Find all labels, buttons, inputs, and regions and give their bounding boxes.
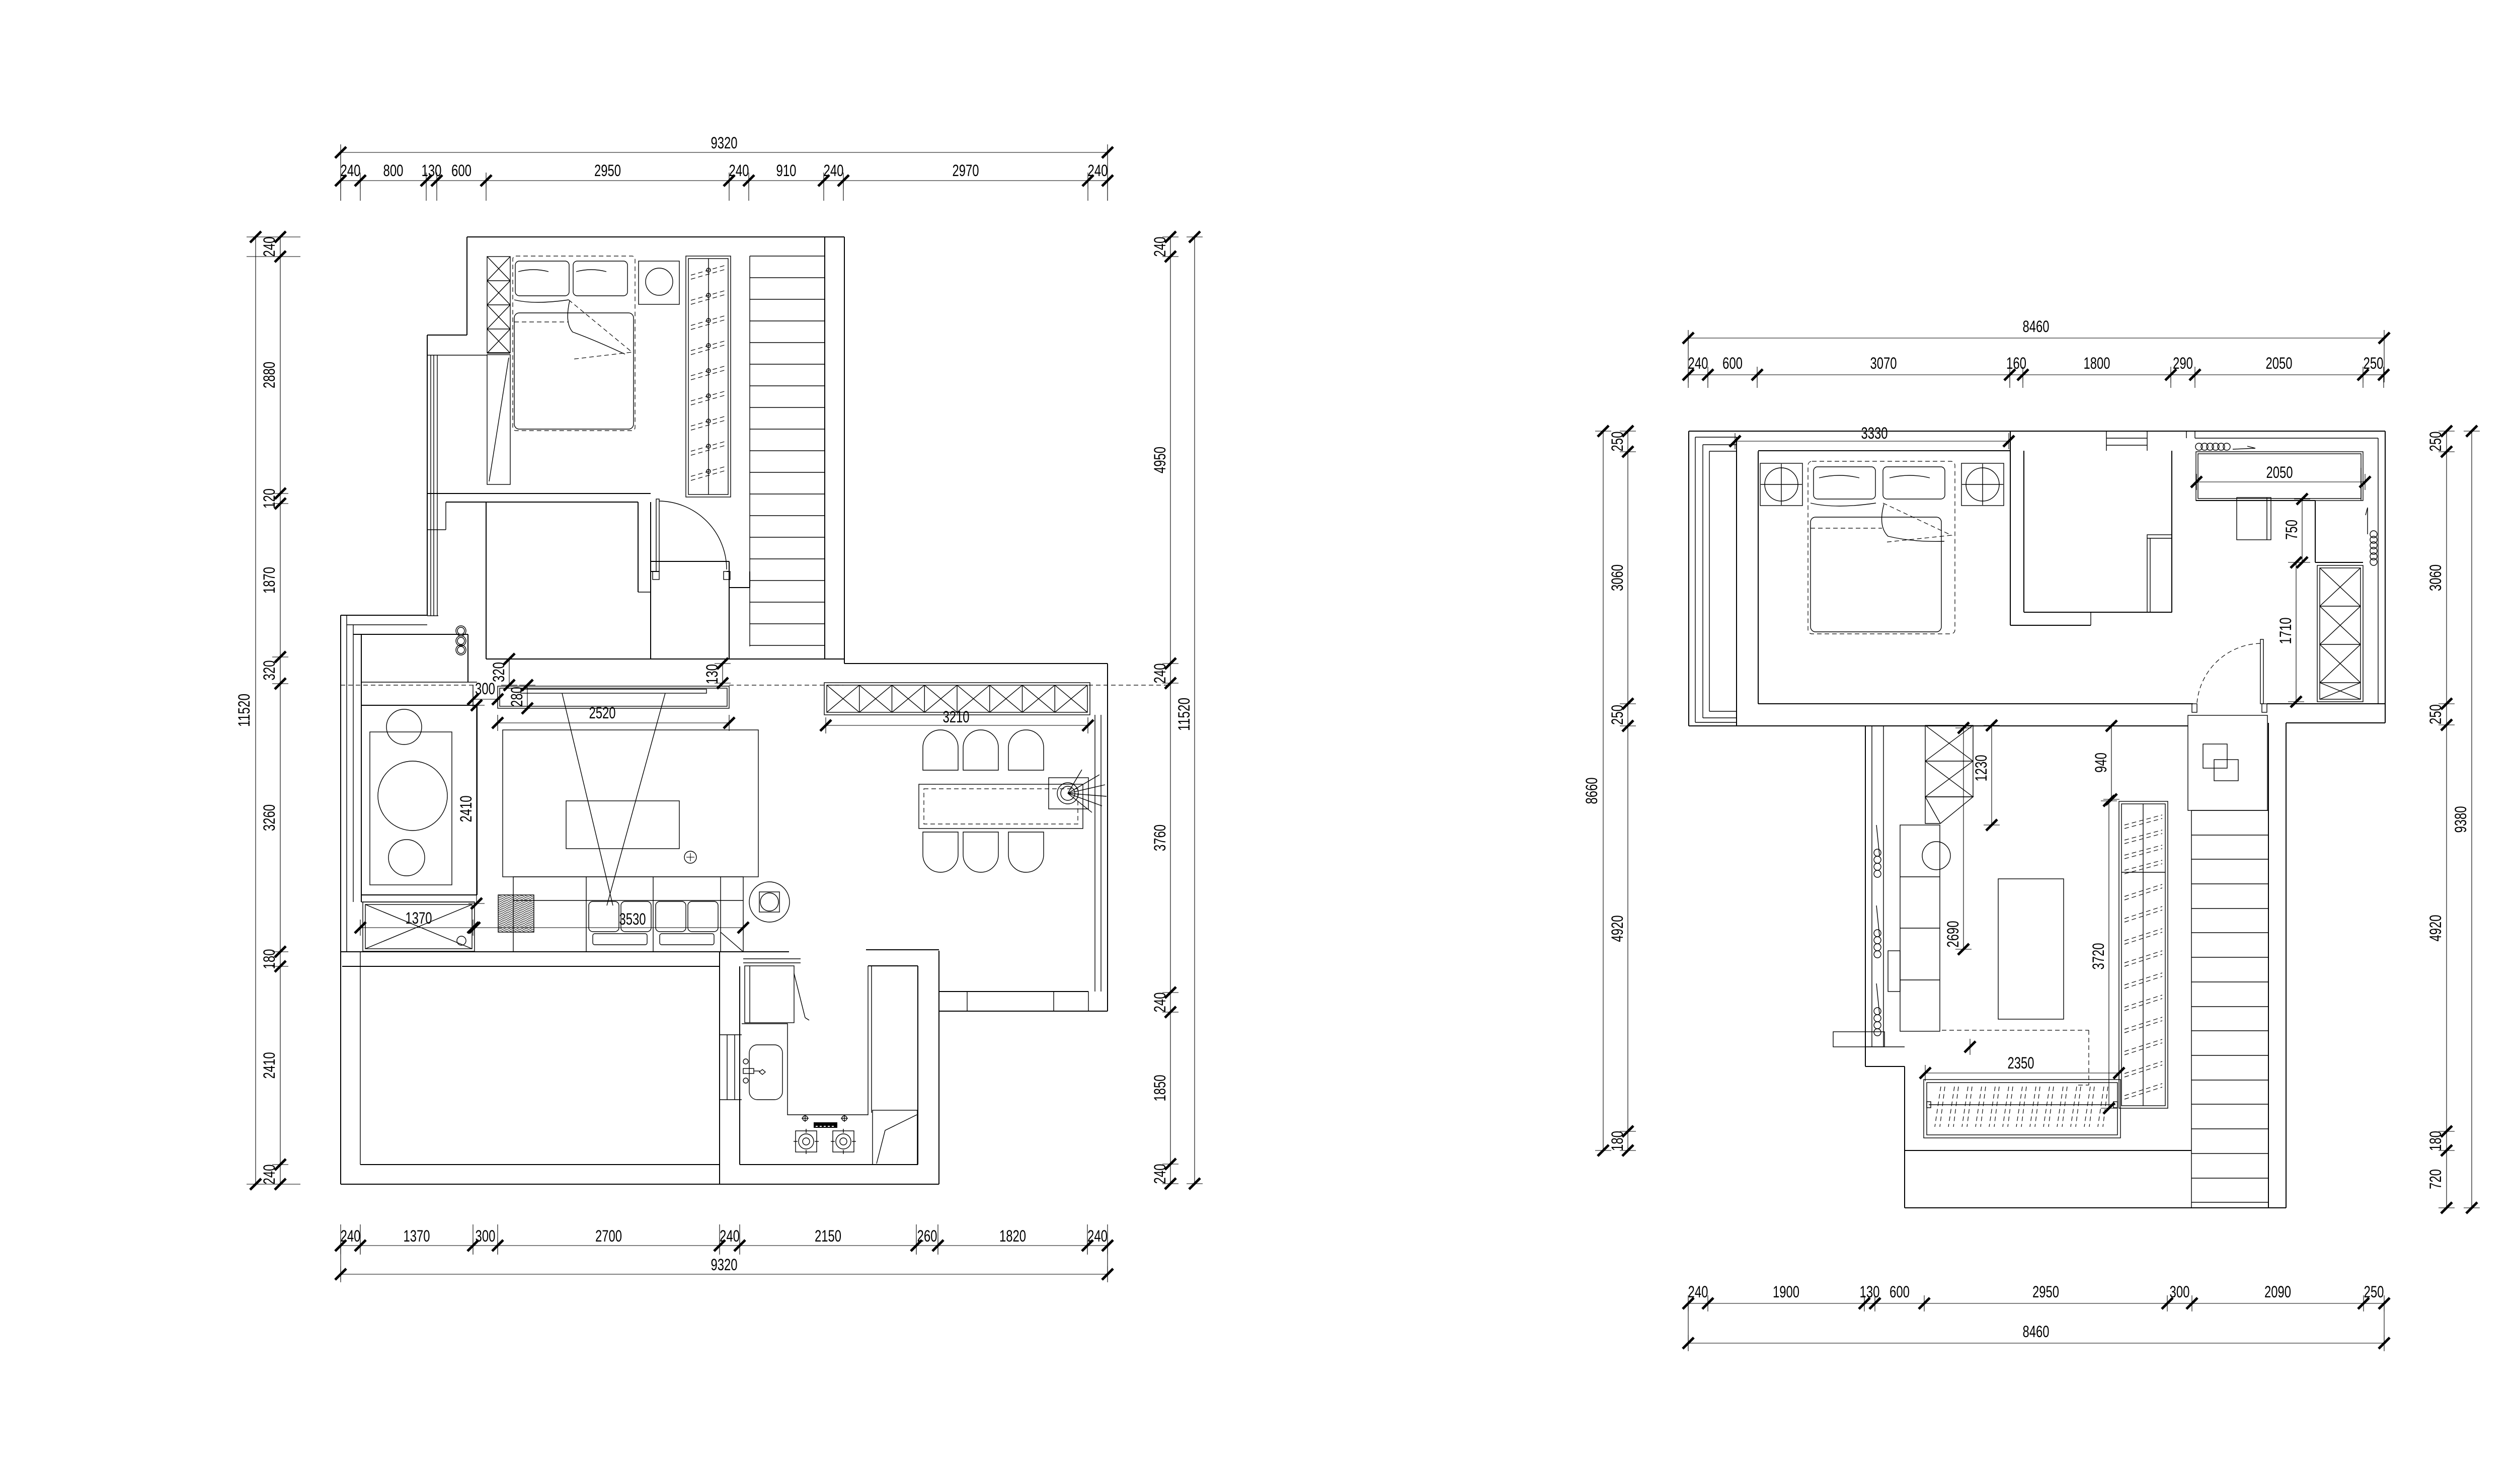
svg-text:3330: 3330: [1861, 424, 1888, 442]
svg-text:250: 250: [1608, 432, 1626, 452]
svg-text:3060: 3060: [1608, 564, 1626, 591]
svg-text:2950: 2950: [594, 161, 621, 180]
svg-text:750: 750: [2283, 520, 2301, 540]
svg-text:300: 300: [476, 1227, 496, 1245]
svg-text:3760: 3760: [1151, 825, 1169, 851]
svg-text:3720: 3720: [2089, 943, 2107, 970]
svg-text:240: 240: [1151, 237, 1169, 257]
svg-text:250: 250: [2426, 704, 2445, 724]
svg-text:160: 160: [2006, 354, 2026, 372]
svg-text:8460: 8460: [2023, 1323, 2050, 1341]
svg-text:600: 600: [451, 161, 471, 180]
svg-text:8660: 8660: [1583, 778, 1601, 804]
svg-text:3210: 3210: [943, 708, 970, 726]
svg-text:9380: 9380: [2452, 806, 2470, 833]
svg-text:2090: 2090: [2264, 1283, 2291, 1301]
svg-text:2690: 2690: [1944, 921, 1962, 948]
svg-text:600: 600: [1722, 354, 1743, 372]
svg-text:240: 240: [1088, 161, 1108, 180]
svg-text:300: 300: [475, 680, 495, 698]
svg-text:3070: 3070: [1870, 354, 1897, 372]
svg-text:240: 240: [720, 1227, 740, 1245]
svg-text:1900: 1900: [1773, 1283, 1799, 1301]
svg-text:240: 240: [341, 161, 361, 180]
svg-text:9320: 9320: [711, 1256, 738, 1274]
svg-text:240: 240: [729, 161, 749, 180]
svg-text:2700: 2700: [595, 1227, 622, 1245]
svg-text:130: 130: [422, 161, 442, 180]
svg-text:2970: 2970: [953, 161, 979, 180]
svg-text:2050: 2050: [2266, 463, 2293, 481]
svg-text:1870: 1870: [260, 567, 278, 594]
svg-text:240: 240: [824, 161, 844, 180]
svg-text:600: 600: [1890, 1283, 1910, 1301]
svg-text:4920: 4920: [2426, 915, 2445, 942]
svg-text:800: 800: [383, 161, 404, 180]
svg-text:120: 120: [260, 488, 278, 509]
svg-text:130: 130: [703, 664, 721, 684]
svg-text:260: 260: [917, 1227, 937, 1245]
svg-text:1800: 1800: [2084, 354, 2110, 372]
svg-text:2410: 2410: [457, 796, 475, 822]
svg-text:240: 240: [1151, 993, 1169, 1013]
svg-text:180: 180: [260, 949, 278, 969]
svg-text:240: 240: [260, 1165, 278, 1185]
svg-text:3530: 3530: [619, 910, 646, 928]
svg-text:1370: 1370: [406, 909, 432, 927]
svg-text:1710: 1710: [2276, 618, 2295, 644]
svg-text:1820: 1820: [999, 1227, 1026, 1245]
svg-text:240: 240: [1151, 664, 1169, 684]
svg-text:2150: 2150: [815, 1227, 841, 1245]
svg-text:3060: 3060: [2426, 564, 2445, 591]
svg-text:320: 320: [490, 662, 508, 682]
svg-text:8460: 8460: [2023, 317, 2050, 336]
svg-text:9320: 9320: [711, 134, 738, 152]
svg-text:2050: 2050: [2266, 354, 2293, 372]
svg-text:240: 240: [1688, 1283, 1708, 1301]
svg-text:2520: 2520: [589, 704, 616, 722]
svg-text:320: 320: [260, 661, 278, 681]
svg-text:180: 180: [1608, 1131, 1626, 1151]
svg-text:4950: 4950: [1151, 447, 1169, 473]
svg-text:250: 250: [2426, 432, 2445, 452]
svg-text:240: 240: [1087, 1227, 1108, 1245]
svg-text:130: 130: [1860, 1283, 1880, 1301]
svg-text:250: 250: [2364, 354, 2384, 372]
svg-text:250: 250: [1608, 705, 1626, 725]
svg-text:280: 280: [508, 687, 526, 707]
svg-text:250: 250: [2364, 1283, 2384, 1301]
svg-text:940: 940: [2092, 753, 2110, 773]
svg-text:240: 240: [260, 237, 278, 257]
svg-text:180: 180: [2426, 1131, 2445, 1151]
svg-text:1370: 1370: [404, 1227, 430, 1245]
svg-text:2950: 2950: [2032, 1283, 2059, 1301]
svg-text:11520: 11520: [235, 694, 253, 727]
svg-text:240: 240: [1151, 1164, 1169, 1184]
svg-text:1850: 1850: [1151, 1075, 1169, 1102]
svg-text:2350: 2350: [2008, 1054, 2034, 1072]
svg-text:4920: 4920: [1608, 916, 1626, 942]
svg-text:3260: 3260: [260, 804, 278, 831]
svg-text:11520: 11520: [1175, 698, 1193, 731]
svg-text:300: 300: [2170, 1283, 2190, 1301]
svg-text:910: 910: [776, 161, 797, 180]
svg-text:1230: 1230: [1972, 755, 1990, 782]
svg-text:720: 720: [2426, 1169, 2445, 1189]
svg-text:2410: 2410: [260, 1052, 278, 1079]
svg-text:2880: 2880: [260, 362, 278, 388]
svg-text:290: 290: [2173, 354, 2193, 372]
svg-text:240: 240: [1688, 354, 1708, 372]
svg-text:240: 240: [341, 1227, 361, 1245]
